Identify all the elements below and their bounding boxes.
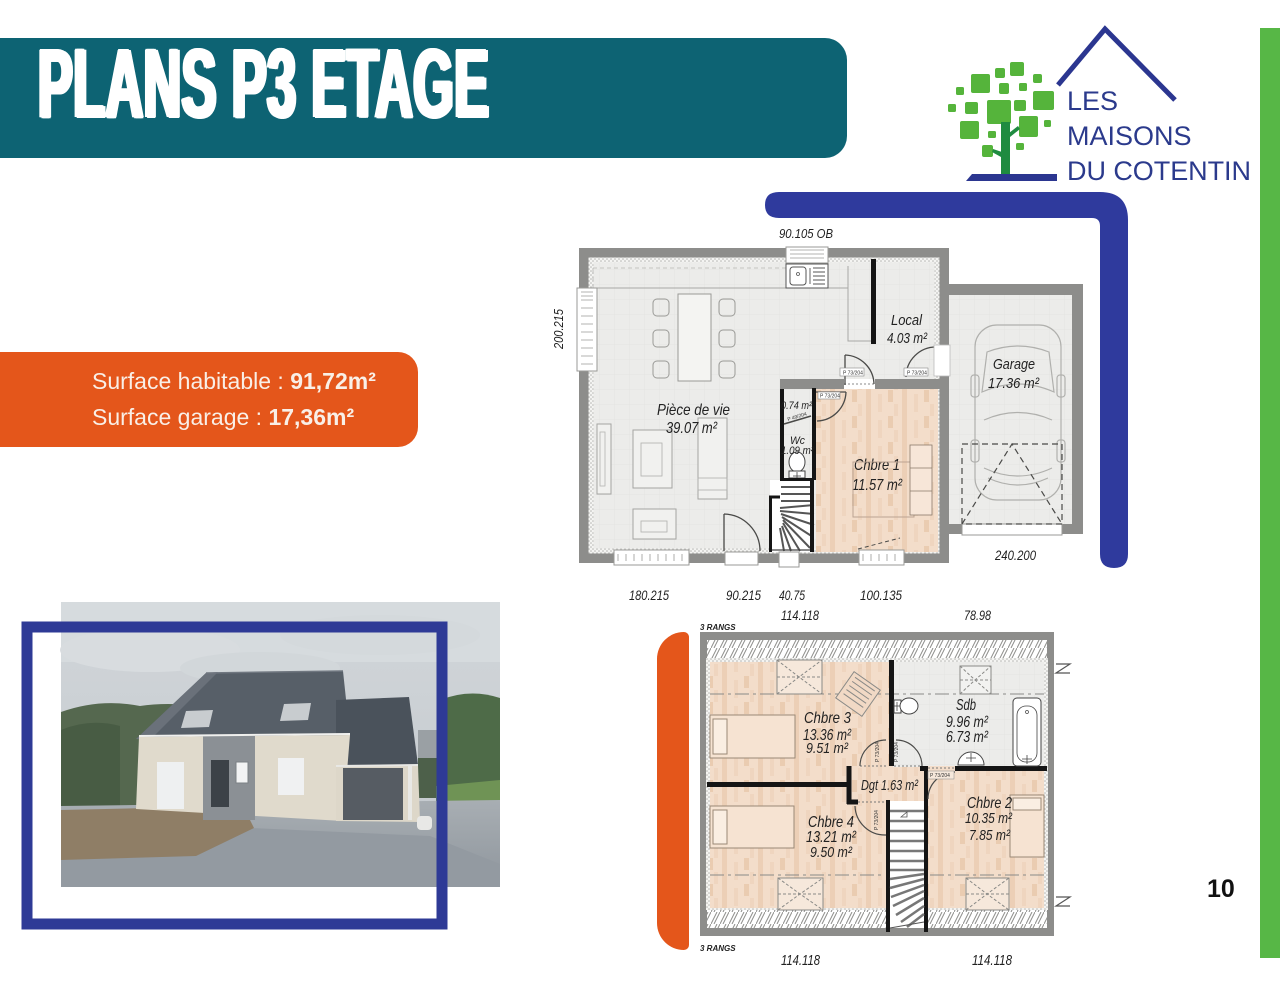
svg-text:10.35 m²: 10.35 m² <box>965 810 1013 827</box>
svg-text:LES: LES <box>1067 86 1118 116</box>
svg-text:P 73/204: P 73/204 <box>907 371 927 377</box>
svg-text:Sdb: Sdb <box>956 697 976 714</box>
svg-text:114.118: 114.118 <box>781 952 820 969</box>
svg-text:3 RANGS: 3 RANGS <box>700 944 736 953</box>
svg-text:Chbre 3: Chbre 3 <box>804 710 851 727</box>
svg-text:114.118: 114.118 <box>972 952 1013 969</box>
svg-text:3 RANGS: 3 RANGS <box>700 623 736 632</box>
svg-text:240.200: 240.200 <box>994 547 1036 563</box>
svg-text:1.09 m²: 1.09 m² <box>781 445 814 457</box>
svg-text:0.74 m²: 0.74 m² <box>781 400 812 412</box>
svg-text:Garage: Garage <box>993 356 1035 373</box>
svg-text:90.105 OB: 90.105 OB <box>779 226 833 241</box>
svg-text:9.50 m²: 9.50 m² <box>810 844 853 861</box>
svg-text:DU COTENTIN: DU COTENTIN <box>1067 156 1251 186</box>
svg-text:200.215: 200.215 <box>551 308 566 349</box>
svg-text:P 73/204: P 73/204 <box>820 394 840 400</box>
svg-text:180.215: 180.215 <box>629 587 669 603</box>
svg-text:P 73/204: P 73/204 <box>874 810 880 830</box>
svg-text:P 73/204: P 73/204 <box>843 371 863 377</box>
svg-text:17.36 m²: 17.36 m² <box>988 375 1040 392</box>
svg-text:6.73 m²: 6.73 m² <box>946 729 989 746</box>
svg-text:P 73/204: P 73/204 <box>875 742 881 762</box>
svg-text:39.07 m²: 39.07 m² <box>666 420 718 437</box>
svg-text:7.85 m²: 7.85 m² <box>969 827 1011 844</box>
svg-text:MAISONS: MAISONS <box>1067 121 1192 151</box>
svg-text:Pièce de vie: Pièce de vie <box>657 402 730 419</box>
svg-text:40.75: 40.75 <box>779 587 805 603</box>
svg-text:9.51 m²: 9.51 m² <box>806 740 849 757</box>
svg-text:Local: Local <box>891 312 923 329</box>
svg-text:11.57 m²: 11.57 m² <box>852 477 903 494</box>
svg-text:Chbre 1: Chbre 1 <box>854 457 900 474</box>
svg-text:4.03 m²: 4.03 m² <box>887 330 928 347</box>
svg-text:Dgt 1.63 m²: Dgt 1.63 m² <box>861 777 919 794</box>
svg-text:P 73/204: P 73/204 <box>894 742 900 762</box>
svg-text:P 73/204: P 73/204 <box>930 773 950 779</box>
svg-text:90.215: 90.215 <box>726 587 761 603</box>
svg-text:100.135: 100.135 <box>860 587 902 603</box>
